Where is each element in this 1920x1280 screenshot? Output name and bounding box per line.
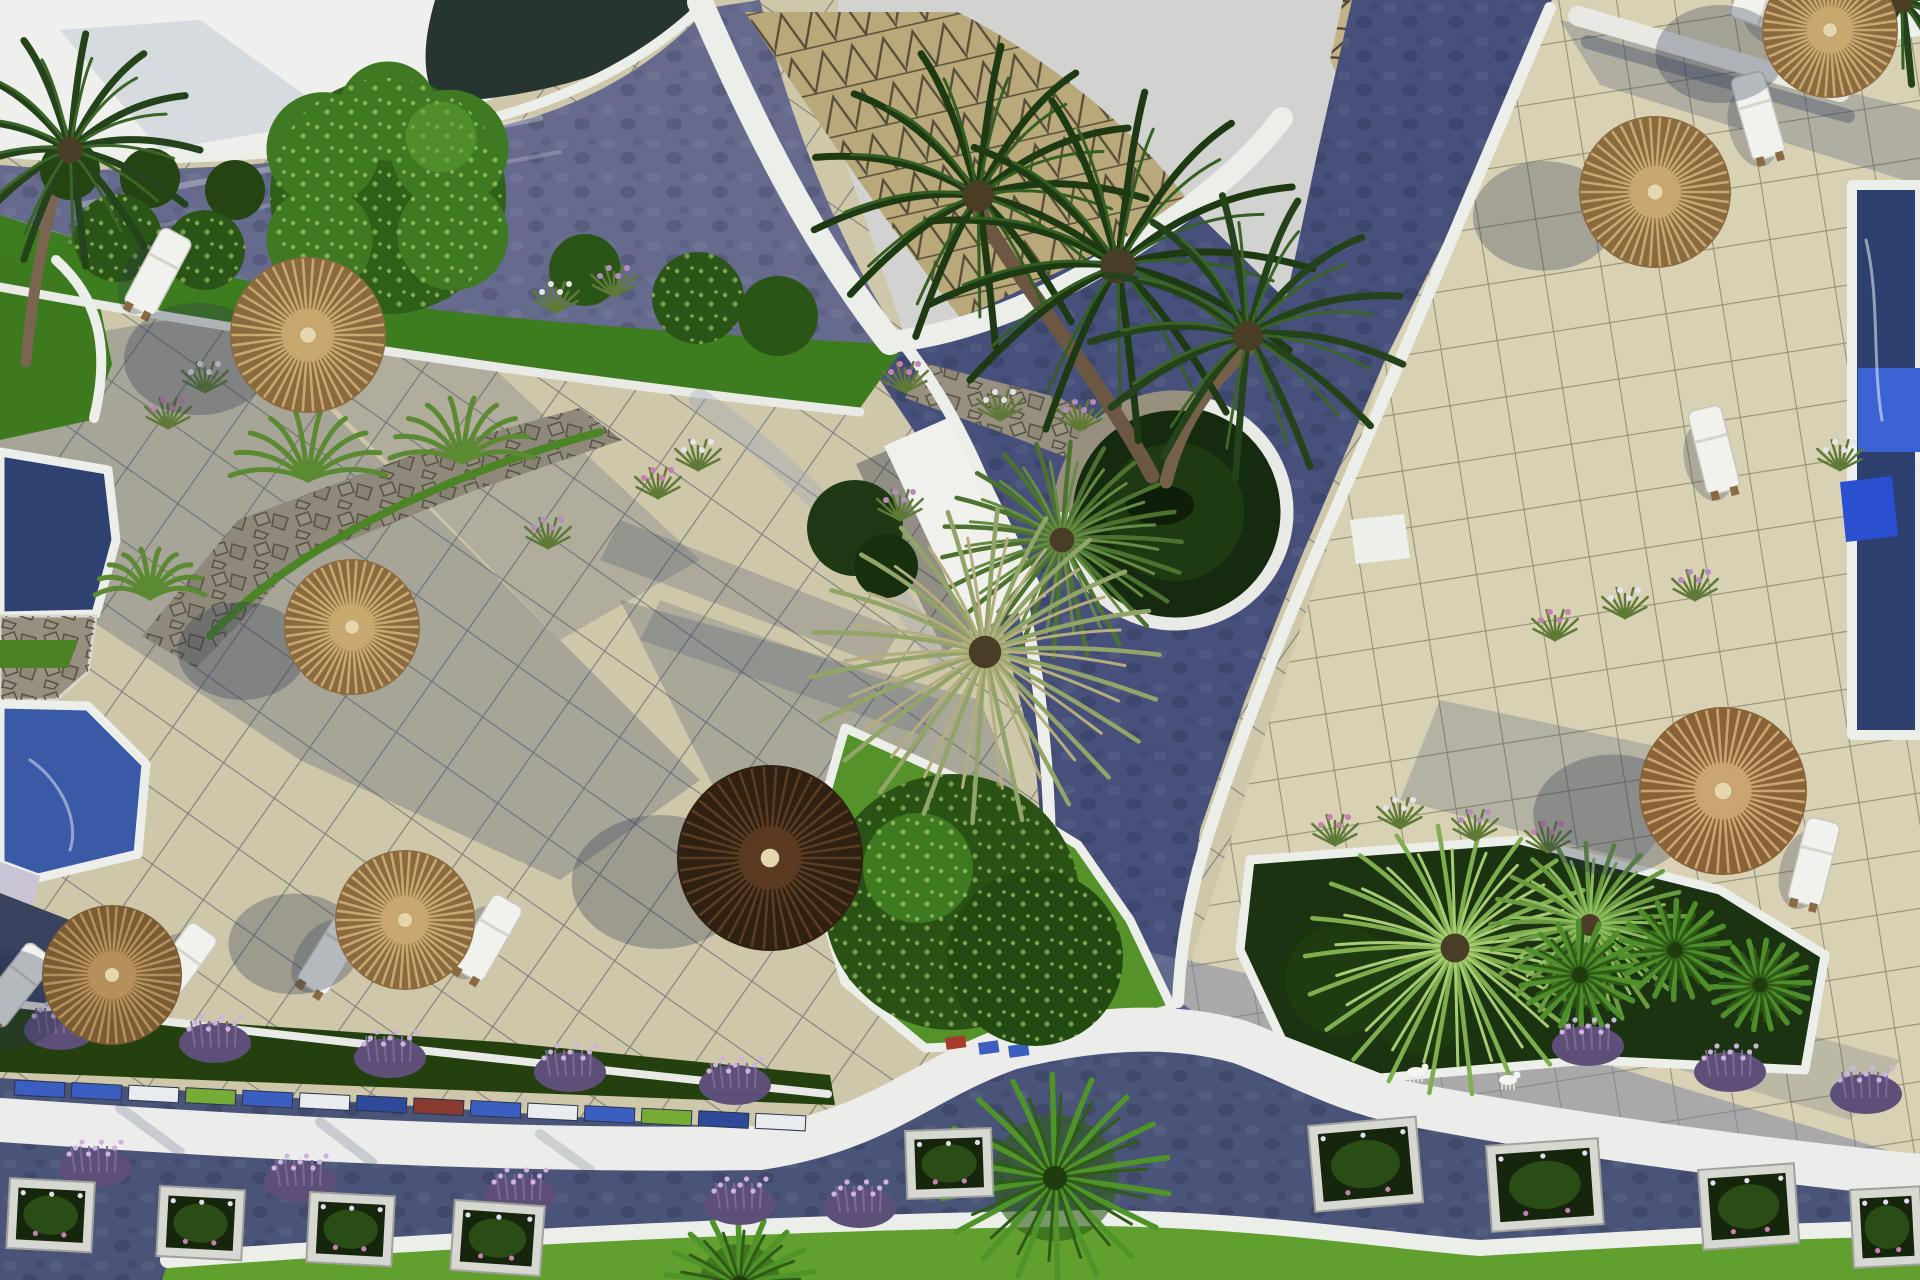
lavender-flower [304,1153,309,1158]
mosaic-tile [356,1095,407,1113]
umbrella-pole-top [1715,783,1732,800]
palm-crown-center [962,180,994,212]
flower-dot [983,397,989,403]
lavender-flower [407,1035,412,1040]
mosaic-tile [527,1103,578,1121]
lavender-stem [303,1160,304,1186]
flower-dot [1476,817,1482,823]
bush-body [205,160,265,220]
lavender-flower [310,1165,315,1170]
flower-dot [531,525,537,531]
lavender-flower [838,1185,843,1190]
mosaic-tile [641,1108,692,1126]
mosaic-tile [128,1085,179,1103]
lavender-flower [744,1176,749,1181]
bush-row-tl-3 [205,160,265,220]
flower-dot [557,289,563,295]
flower-dot [883,497,889,503]
lavender-flower [1863,1071,1868,1076]
lavender-flower [1850,1065,1855,1070]
flower-dot [1626,595,1632,601]
lavender-flower [763,1176,768,1181]
palm-crown-center [1753,978,1768,993]
lavender-flower [291,1165,296,1170]
lavender-flower [524,1167,529,1172]
lavender-flower [271,1165,276,1170]
lavender-flower [718,1182,723,1187]
lavender-flower [844,1179,849,1184]
flower-dot [151,405,157,411]
lavender-flower [112,1145,117,1150]
lavender-flower [368,1035,373,1040]
planter-box [6,1178,95,1252]
lavender-flower [1740,1055,1745,1060]
mosaic-tile [584,1106,635,1124]
flower-dot [910,489,916,495]
planter-box [1308,1117,1423,1212]
mosaic-tile [14,1080,65,1098]
lavender-stem [863,1186,864,1212]
animal-head [1422,1064,1429,1071]
palm-crown-center [1572,967,1588,983]
lavender-flower [1727,1049,1732,1054]
flower-dot [624,265,630,271]
lavender-flower [752,1062,757,1067]
flower-dot [650,467,656,473]
flower-dot [1696,577,1702,583]
flower-dot [892,489,898,495]
lavender-flower [186,1026,191,1031]
lavender-stem [738,1063,739,1089]
lavender-flower [726,1068,731,1073]
flower-dot [606,265,612,271]
planter-box [1698,1163,1799,1250]
flower-dot [992,389,998,395]
lavender-flower [1701,1055,1706,1060]
palm-crown-center [1667,942,1683,958]
lavender-flower [1837,1077,1842,1082]
lavender-flower [99,1139,104,1144]
planter-box [306,1192,395,1266]
lavender-flower [1585,1023,1590,1028]
lavender-flower [739,1056,744,1061]
lavender-stem [1869,1072,1870,1098]
planter-box [1486,1138,1604,1232]
lavender-flower [870,1191,875,1196]
planter-box [450,1200,545,1276]
lavender-flower [757,1182,762,1187]
lavender-flower [317,1159,322,1164]
bush-speckle [947,870,1123,1046]
palm-crown-center [1050,528,1075,553]
umbrella-pole-top [1647,184,1662,199]
lavender-flower [574,1043,579,1048]
flower-dot [1565,609,1571,615]
mosaic-tile [299,1093,350,1111]
lavender-flower [361,1041,366,1046]
flower-dot [615,273,621,279]
umbrella-pole-top [1823,23,1837,37]
flower-dot [659,475,665,481]
bush-body [854,534,918,598]
lavender-flower [587,1049,592,1054]
flower-dot [1556,617,1562,623]
flower-dot [888,369,894,375]
flower-dot [708,439,714,445]
umbrella-pole-top [398,913,412,927]
flower-dot [1608,595,1614,601]
lavender-flower [374,1029,379,1034]
flower-dot [1538,617,1544,623]
lavender-flower [530,1179,535,1184]
umbrella-pole-top [761,849,780,868]
tree-highlight [406,102,477,173]
flower-dot [1401,805,1407,811]
palm-crown-center [1043,1166,1067,1190]
lavender-flower [118,1139,123,1144]
flower-dot [641,475,647,481]
flower-dot [1705,569,1711,575]
flower-dot [1687,569,1693,575]
lavender-stem [743,1183,744,1209]
flower-dot [1081,407,1087,413]
flower-dot [1850,439,1856,445]
bush-island-hl [863,813,973,923]
lavender-flower [724,1176,729,1181]
palm-crown-center [57,137,83,163]
flower-dot [1485,809,1491,815]
bush-island-2 [947,870,1123,1046]
lavender-flower [323,1153,328,1158]
flower-dot [915,361,921,367]
blue-box-right [1840,476,1898,542]
lavender-flower [593,1043,598,1048]
flower-dot [1383,805,1389,811]
lavender-flower [491,1179,496,1184]
lavender-flower [877,1185,882,1190]
lavender-flower [713,1062,718,1067]
lavender-flower [750,1188,755,1193]
flower-dot [1458,817,1464,823]
palm-crown-center [1441,934,1470,963]
lavender-stem [98,1146,99,1172]
flower-dot [1063,407,1069,413]
bush-lawnband-5 [738,276,818,356]
flower-dot [699,447,705,453]
lavender-flower [381,1041,386,1046]
flower-dot [566,281,572,287]
lavender-flower [864,1179,869,1184]
lavender-flower [1605,1023,1610,1028]
resort-aerial-render: Aerial render of a resort terrace: tiled… [0,0,1920,1280]
lavender-flower [1747,1049,1752,1054]
lavender-stem [1591,1024,1592,1050]
umbrella-pole-top [105,968,119,982]
flower-dot [1467,809,1473,815]
bush-body [738,276,818,356]
lavender-flower [1714,1043,1719,1048]
lavender-flower [1889,1065,1894,1070]
lavender-flower [1870,1065,1875,1070]
flower-dot [1010,389,1016,395]
flower-dot [906,369,912,375]
flower-dot [540,517,546,523]
lavender-flower [561,1055,566,1060]
lavender-flower [883,1179,888,1184]
mosaic-tile [242,1090,293,1108]
planter-box [156,1186,245,1260]
palm-frond [1055,1178,1058,1280]
lavender-flower [554,1043,559,1048]
lavender-flower [511,1179,516,1184]
flower-dot [1318,822,1324,828]
flower-dot [1617,587,1623,593]
lavender-flower [219,1014,224,1019]
lavender-stem [523,1174,524,1200]
scene-canvas [0,0,1920,1280]
lavender-flower [517,1173,522,1178]
lavender-flower [1579,1029,1584,1034]
lavender-flower [297,1159,302,1164]
umbrella-pole-top [300,327,316,343]
lavender-flower [580,1055,585,1060]
flower-dot [1336,822,1342,828]
lavender-flower [1753,1043,1758,1048]
palm-crown-center [1233,321,1263,351]
lavender-flower [238,1014,243,1019]
lavender-flower [1572,1017,1577,1022]
flower-dot [1832,439,1838,445]
lavender-flower [1721,1055,1726,1060]
lavender-flower [745,1068,750,1073]
lavender-flower [732,1062,737,1067]
lavender-flower [212,1020,217,1025]
lavender-flower [1592,1017,1597,1022]
lavender-stem [573,1050,574,1076]
lavender-flower [851,1191,856,1196]
lavender-flower [199,1014,204,1019]
lavender-flower [206,1026,211,1031]
lavender-flower [225,1026,230,1031]
stone-planter-grass [0,640,78,668]
mosaic-tile [698,1111,749,1129]
lavender-flower [105,1151,110,1156]
bush-speckle [863,813,973,923]
flower-dot [1823,447,1829,453]
flower-dot [1547,609,1553,615]
lavender-flower [711,1188,716,1193]
mosaic-tile [71,1083,122,1101]
lavender-flower [706,1068,711,1073]
bush-speckle [652,252,744,344]
mosaic-tile [470,1101,521,1119]
lavender-flower [537,1173,542,1178]
lavender-flower [831,1191,836,1196]
flower-dot [558,517,564,523]
lavender-flower [1844,1071,1849,1076]
lavender-flower [1876,1077,1881,1082]
lavender-flower [731,1188,736,1193]
pool-right-lit [1858,368,1920,452]
flower-dot [1635,587,1641,593]
flower-dot [897,361,903,367]
flower-dot [681,447,687,453]
lavender-stem [1733,1050,1734,1076]
flower-dot [1090,399,1096,405]
flower-dot [1410,797,1416,803]
flower-dot [1392,797,1398,803]
lavender-flower [1559,1029,1564,1034]
lavender-stem [218,1021,219,1047]
lavender-flower [1857,1077,1862,1082]
flower-dot [1072,399,1078,405]
lavender-flower [284,1153,289,1158]
lavender-flower [79,1139,84,1144]
lavender-flower [548,1049,553,1054]
lavender-stem [393,1036,394,1062]
flower-dot [668,467,674,473]
lavender-flower [394,1029,399,1034]
lavender-flower [193,1020,198,1025]
lavender-flower [413,1029,418,1034]
lavender-flower [1598,1029,1603,1034]
planter-box [1850,1186,1920,1268]
lavender-flower [92,1145,97,1150]
flower-dot [539,289,545,295]
mosaic-tile [185,1088,236,1106]
lavender-flower [719,1056,724,1061]
lavender-flower [400,1041,405,1046]
flower-dot [901,497,907,503]
palm-frond [978,196,980,317]
animal-head [1514,1072,1521,1079]
lavender-flower [1611,1017,1616,1022]
flower-dot [1841,447,1847,453]
flower-dot [690,439,696,445]
bush-roadside-2 [854,534,918,598]
lavender-flower [1708,1049,1713,1054]
lavender-flower [387,1035,392,1040]
lavender-flower [73,1145,78,1150]
lavender-flower [1883,1071,1888,1076]
flower-dot [549,525,555,531]
lavender-flower [86,1151,91,1156]
flower-dot [1345,814,1351,820]
flower-dot [1678,577,1684,583]
lavender-flower [857,1185,862,1190]
lavender-flower [278,1159,283,1164]
mosaic-tile [413,1098,464,1116]
white-wall-stub [1350,514,1410,564]
lavender-flower [543,1167,548,1172]
lavender-flower [541,1055,546,1060]
flower-dot [1327,814,1333,820]
lavender-flower [758,1056,763,1061]
flower-dot [597,273,603,279]
lavender-flower [1734,1043,1739,1048]
lavender-flower [737,1182,742,1187]
lavender-flower [1566,1023,1571,1028]
bush-lawnband-4 [652,252,744,344]
umbrella-pole-top [345,620,359,634]
mosaic-tile [755,1113,806,1131]
flower-dot [1001,397,1007,403]
palm-crown-center [969,636,1002,669]
lavender-flower [504,1167,509,1172]
lavender-flower [567,1049,572,1054]
lavender-flower [498,1173,503,1178]
flower-dot [548,281,554,287]
planter-box [905,1128,993,1199]
lavender-flower [232,1020,237,1025]
lavender-flower [66,1151,71,1156]
